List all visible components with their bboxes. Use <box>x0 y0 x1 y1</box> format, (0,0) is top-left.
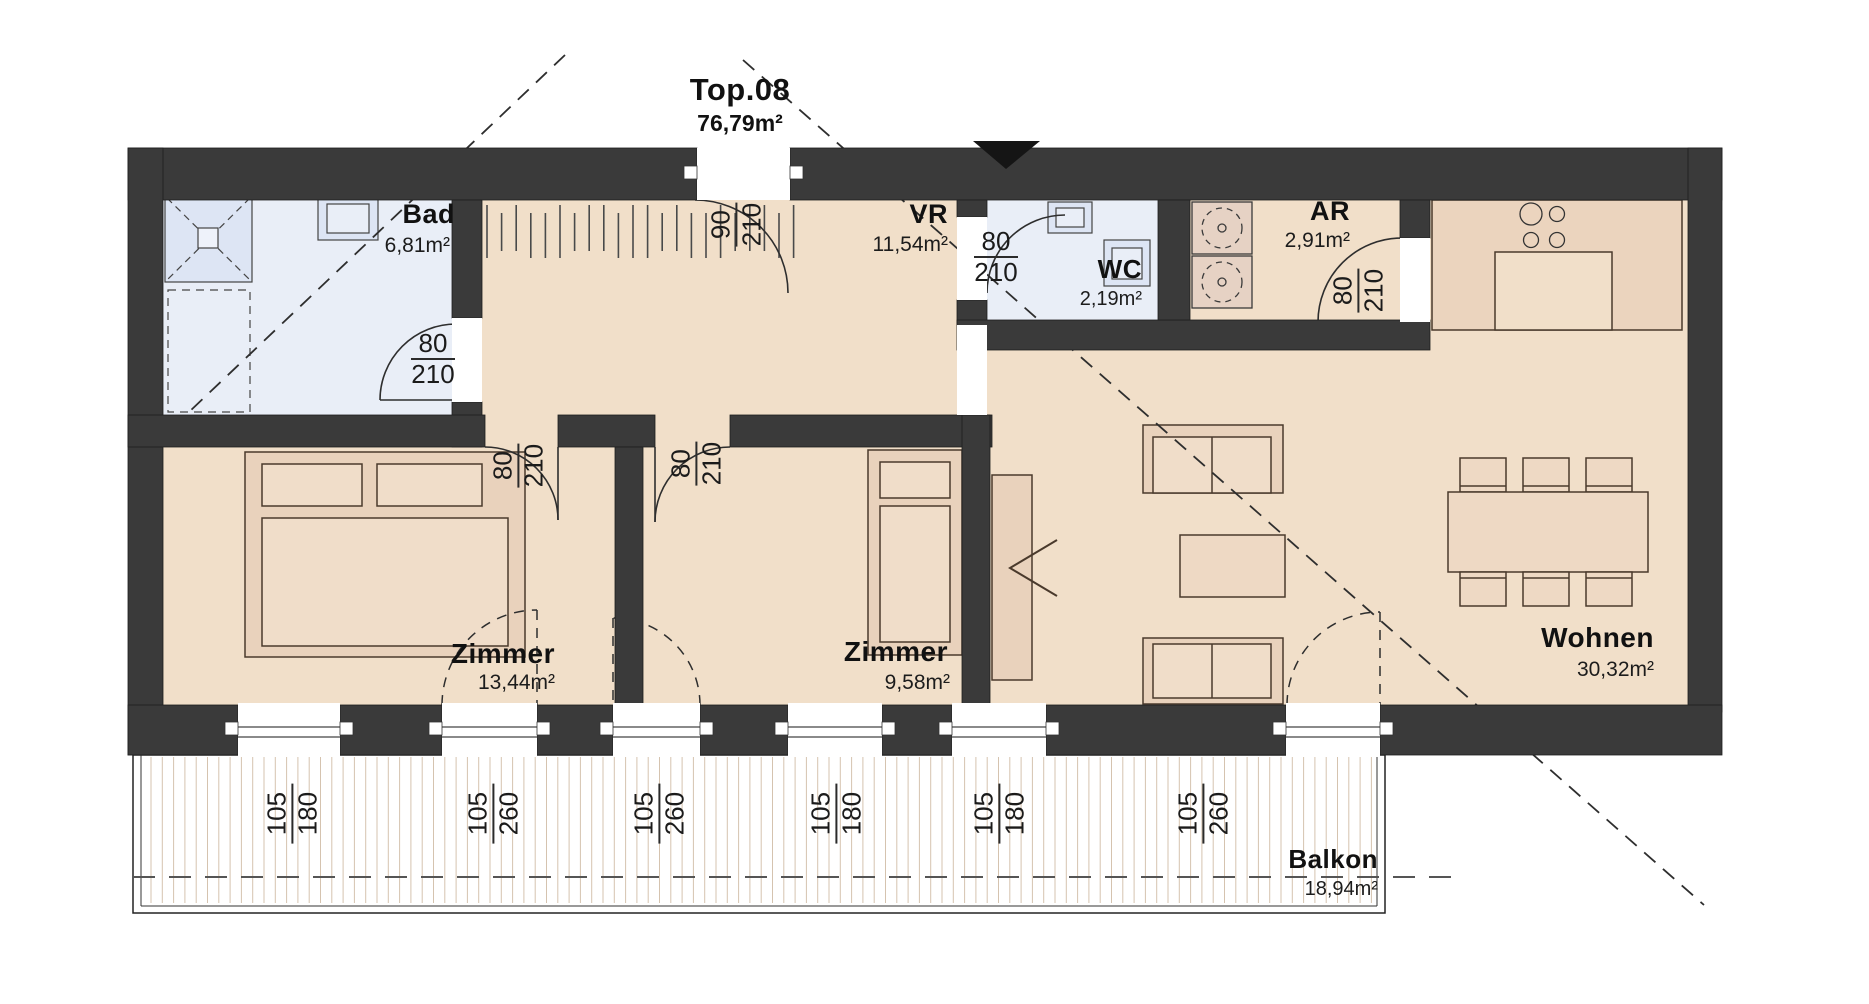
window-width: 105 <box>262 784 293 843</box>
window-size-2: 105 260 <box>463 772 522 856</box>
door-size-entrance: 90 210 <box>706 186 765 264</box>
shower <box>165 196 252 282</box>
door-height: 210 <box>972 258 1019 287</box>
door-width: 80 <box>1328 268 1359 313</box>
dining-table <box>1448 492 1648 572</box>
room-area-wc: 2,19m² <box>1050 288 1142 311</box>
window-width: 105 <box>463 784 494 843</box>
room-label-zimmer2: Zimmer <box>790 636 948 668</box>
room-area-ar: 2,91m² <box>1250 229 1350 253</box>
door-size-bad: 80 210 <box>394 329 472 388</box>
room-label-bad: Bad <box>325 199 455 230</box>
door-width: 80 <box>666 441 697 486</box>
room-area-zimmer2: 9,58m² <box>800 671 950 695</box>
door-height: 210 <box>1359 267 1388 314</box>
door-jamb <box>684 166 697 179</box>
room-label-wohnen: Wohnen <box>1480 622 1654 654</box>
door-width: 90 <box>706 202 737 247</box>
chair <box>1460 572 1506 606</box>
window-size-4: 105 180 <box>806 772 865 856</box>
door-jamb <box>790 166 803 179</box>
window-size-3: 105 260 <box>629 772 688 856</box>
window-width: 105 <box>1173 784 1204 843</box>
window-size-1: 105 180 <box>262 772 321 856</box>
room-area-zimmer1: 13,44m² <box>420 671 555 695</box>
ar-door-opening <box>1400 238 1430 322</box>
window-height: 180 <box>837 790 866 837</box>
window-width: 105 <box>806 784 837 843</box>
room-label-balkon: Balkon <box>1230 844 1378 875</box>
chair <box>1523 458 1569 492</box>
room-area-bad: 6,81m² <box>322 234 450 258</box>
kitchen-counter <box>1432 200 1682 330</box>
sofa-bottom <box>1143 638 1283 704</box>
window-height: 260 <box>1204 790 1233 837</box>
dining-set <box>1448 458 1648 606</box>
door-width: 80 <box>411 329 456 360</box>
door-height: 210 <box>737 201 766 248</box>
window-height: 260 <box>494 790 523 837</box>
room-label-zimmer1: Zimmer <box>403 638 555 670</box>
floor-plan: Top.08 76,79m² Bad 6,81m² VR 11,54m² WC … <box>0 0 1869 1004</box>
door-width: 80 <box>974 227 1019 258</box>
chair <box>1586 572 1632 606</box>
room-label-wc: WC <box>1060 254 1142 285</box>
vr-wohnen-passage <box>957 325 987 415</box>
room-label-vr: VR <box>830 199 948 230</box>
door-width: 80 <box>488 443 519 488</box>
window-size-6: 105 260 <box>1173 772 1232 856</box>
window-size-5: 105 180 <box>969 772 1028 856</box>
room-area-balkon: 18,94m² <box>1238 878 1378 901</box>
chair <box>1460 458 1506 492</box>
chair <box>1586 458 1632 492</box>
room-label-ar: AR <box>1258 196 1350 227</box>
door-size-wc: 80 210 <box>957 227 1035 286</box>
window-width: 105 <box>629 784 660 843</box>
coffee-table <box>1180 535 1285 597</box>
single-bed <box>868 450 962 655</box>
room-area-wohnen: 30,32m² <box>1500 658 1654 682</box>
sofa-top <box>1143 425 1283 493</box>
window-height: 260 <box>660 790 689 837</box>
unit-title: Top.08 <box>615 72 865 108</box>
chair <box>1523 572 1569 606</box>
door-size-zimmer2: 80 210 <box>666 425 725 503</box>
wc-sink <box>1048 202 1092 233</box>
door-height: 210 <box>409 360 456 389</box>
door-height: 210 <box>697 440 726 487</box>
window-height: 180 <box>1000 790 1029 837</box>
door-size-zimmer1: 80 210 <box>488 427 547 505</box>
room-area-vr: 11,54m² <box>810 233 948 257</box>
door-size-ar: 80 210 <box>1328 252 1387 330</box>
window-width: 105 <box>969 784 1000 843</box>
window-height: 180 <box>293 790 322 837</box>
door-height: 210 <box>519 442 548 489</box>
unit-area: 76,79m² <box>615 110 865 137</box>
